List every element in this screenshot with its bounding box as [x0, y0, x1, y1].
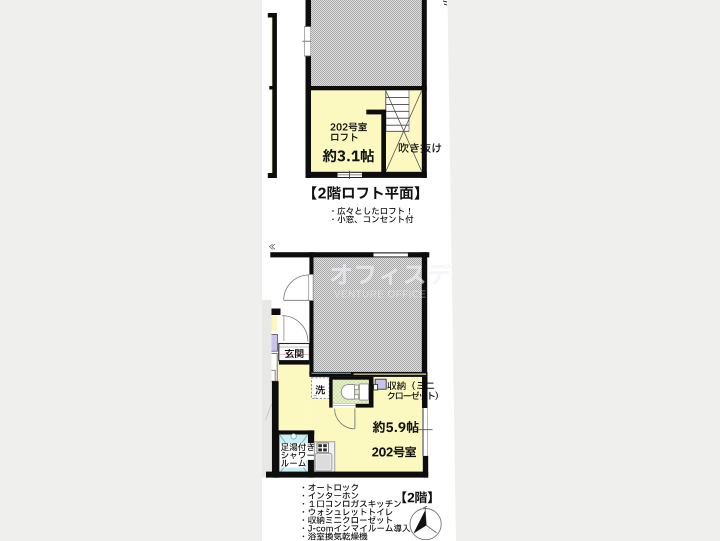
- svg-text:VENTURE OFFICE: VENTURE OFFICE: [334, 290, 426, 301]
